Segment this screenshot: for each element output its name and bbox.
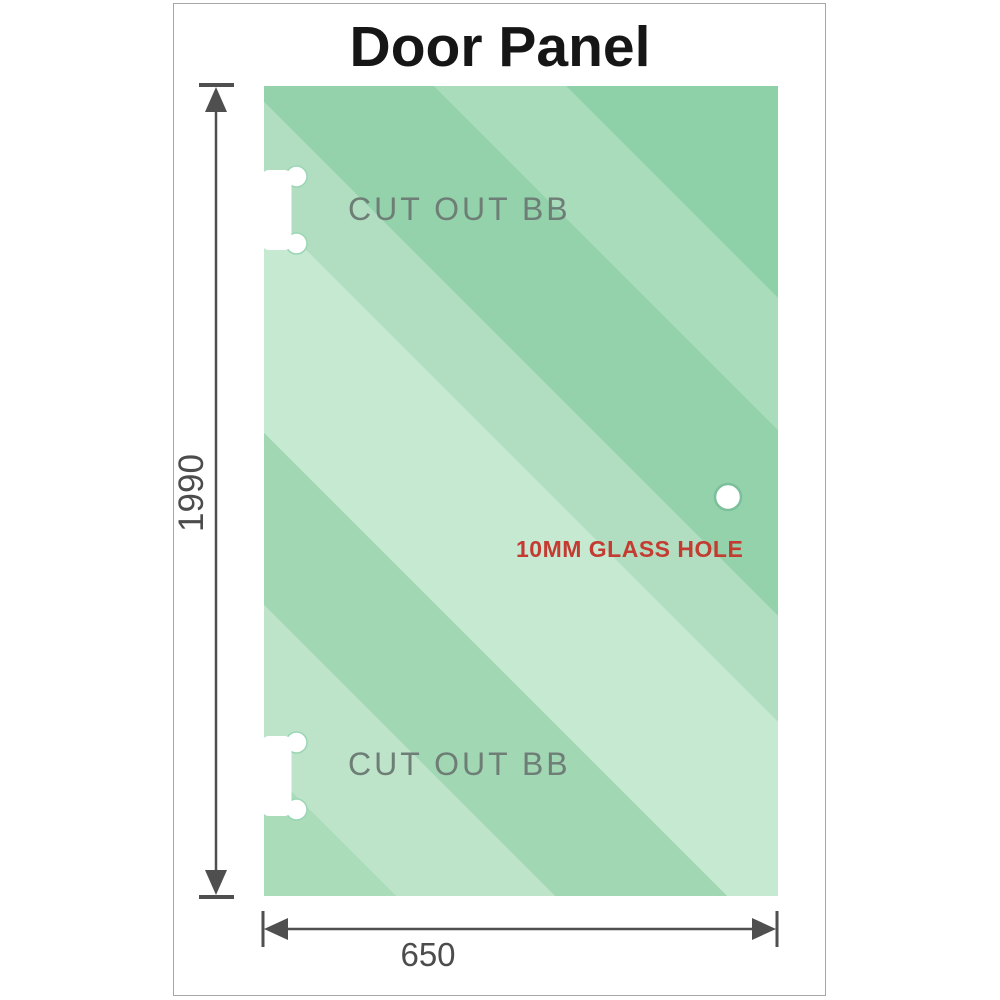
diagram-overlay xyxy=(0,0,1000,1000)
cutout-top-label: CUT OUT BB xyxy=(348,191,571,228)
hinge-cutout-bottom xyxy=(262,732,307,820)
glass-hole xyxy=(715,484,741,510)
glass-hole-label: 10MM GLASS HOLE xyxy=(516,536,743,563)
width-dimension-label: 650 xyxy=(368,936,488,976)
hinge-cutout-top xyxy=(262,166,307,254)
height-dimension-label: 1990 xyxy=(172,433,212,553)
cutout-bottom-label: CUT OUT BB xyxy=(348,746,571,783)
width-dimension-arrow xyxy=(263,911,777,947)
